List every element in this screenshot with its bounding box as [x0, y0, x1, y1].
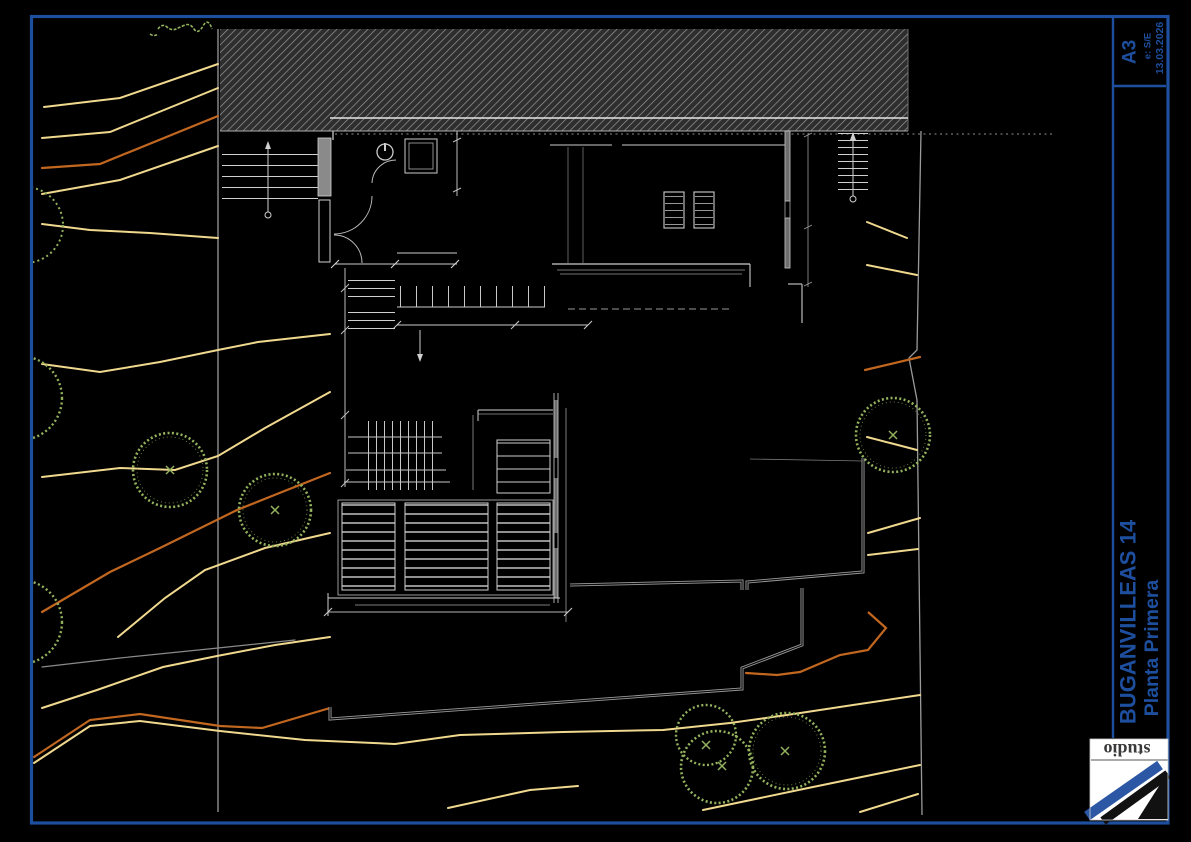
contour-line: [867, 265, 917, 275]
contour-line: [868, 549, 918, 555]
door-swing: [334, 235, 362, 263]
contour-line: [868, 518, 920, 533]
contour-line: [867, 437, 917, 450]
contour-line-orange: [746, 612, 886, 675]
contour-line: [867, 222, 907, 238]
east-wall: [785, 218, 790, 268]
tree: [749, 713, 825, 789]
upper-louver-panel: [497, 440, 550, 493]
north-rooms: [550, 131, 812, 323]
tree: [133, 433, 207, 507]
floor-plan-sheet: A3 e: S/E 13.03.2026 BUGANVILLEAS 14 Pla…: [0, 0, 1191, 842]
project-title: BUGANVILLEAS 14: [1116, 519, 1141, 724]
east-wall: [785, 131, 790, 201]
date-label: 13.03.2026: [1154, 22, 1166, 75]
contour-line: [42, 146, 218, 194]
exterior-stair-right: [838, 131, 868, 202]
paper-size-label: A3: [1120, 40, 1141, 64]
house-plan: [222, 131, 868, 622]
neighbor-building-hatch: [220, 29, 1055, 134]
contour-line: [118, 533, 330, 637]
contour-line-gray: [42, 640, 295, 667]
plan-canvas: A3 e: S/E 13.03.2026 BUGANVILLEAS 14 Pla…: [0, 0, 1191, 842]
tree: [681, 731, 753, 803]
pergola-grid: [344, 421, 450, 490]
contour-line: [44, 64, 218, 107]
drawing-area: [0, 22, 1055, 815]
contour-line-orange: [865, 357, 920, 370]
plot-boundary-right: [909, 131, 922, 815]
tree: [856, 398, 930, 472]
contour-line: [860, 794, 918, 812]
studio-logo: studio: [1087, 739, 1168, 821]
plan-title: Planta Primera: [1141, 580, 1163, 717]
title-block-texts: A3 e: S/E 13.03.2026 BUGANVILLEAS 14 Pla…: [1116, 22, 1167, 725]
trees: [0, 22, 930, 803]
deck-east-wall: [554, 478, 558, 533]
door-swing: [334, 196, 372, 234]
logo-wordmark: studio: [1103, 740, 1150, 760]
contour-line: [42, 637, 330, 708]
entrance-area: [318, 131, 461, 263]
contour-line: [42, 334, 330, 372]
wc-symbol: [377, 143, 393, 160]
door-swing: [372, 160, 396, 183]
scale-label: e: S/E: [1143, 33, 1154, 59]
shrub-squiggle: [150, 22, 212, 35]
wall-pier: [318, 138, 331, 196]
appliance-symbol: [405, 139, 437, 173]
tree: [676, 705, 736, 765]
deck-louvers: [324, 393, 572, 622]
deck-east-wall: [554, 548, 558, 598]
contour-line: [448, 786, 578, 808]
contour-line: [42, 224, 218, 238]
exterior-stair-left: [222, 145, 318, 218]
sheet-frame: A3 e: S/E 13.03.2026 BUGANVILLEAS 14 Pla…: [32, 17, 1169, 824]
deck-east-wall: [554, 400, 558, 458]
frame-border: [32, 17, 1169, 824]
contour-line: [42, 392, 330, 477]
